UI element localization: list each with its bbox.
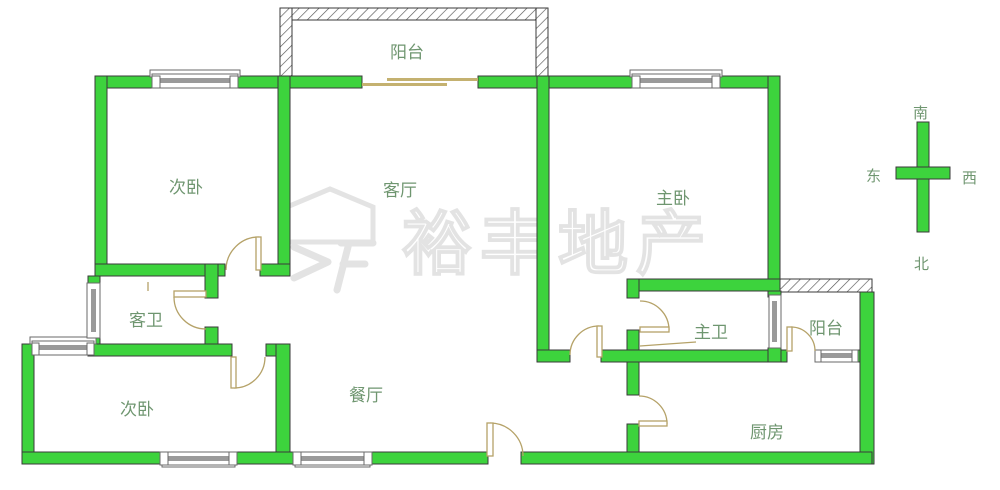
- wall-bathkitchen-left-a: [627, 279, 639, 298]
- window-balcony2-bottom: [815, 350, 858, 362]
- wall-right-outer: [860, 292, 874, 464]
- compass: 南 东 西 北: [866, 104, 977, 273]
- door-master-hall: [570, 326, 602, 357]
- door-masterbath: [640, 301, 669, 332]
- label-kitchen: 厨房: [750, 423, 784, 443]
- window-bedroom2-top: [30, 337, 96, 355]
- door-entry: [487, 423, 523, 456]
- wall-living-right: [537, 76, 549, 362]
- floor-plan-svg: 裕丰地产: [0, 0, 1000, 490]
- door-bedroom1: [226, 237, 261, 270]
- floor-plan: 裕丰地产: [0, 0, 1000, 490]
- wall-guestbath-right-upper: [205, 264, 218, 298]
- compass-east: 东: [866, 167, 881, 185]
- wall-top-b: [238, 76, 362, 88]
- window-bedroom1-top: [150, 70, 240, 88]
- label-bedroom-top-left: 次卧: [169, 178, 203, 198]
- wall-top-c: [478, 76, 632, 88]
- wall-bathwin-stub-bottom: [768, 348, 781, 362]
- label-living-room: 客厅: [383, 181, 417, 201]
- label-balcony-right: 阳台: [809, 319, 843, 339]
- label-master-bathroom: 主卫: [694, 323, 728, 343]
- compass-north: 北: [914, 255, 929, 273]
- wall-mid-b: [260, 264, 290, 276]
- wall-masterbath-top: [627, 279, 780, 291]
- door-kitchen: [639, 396, 667, 426]
- door-balcony-sliding: [362, 78, 478, 86]
- label-dining-room: 餐厅: [349, 386, 383, 406]
- wall-left-lower: [22, 344, 34, 464]
- watermark-logo-f: [337, 243, 373, 290]
- wall-midlower-b: [601, 350, 787, 362]
- balcony-top-wall-hatched: [280, 8, 548, 20]
- window-masterbath-balcony: [769, 295, 781, 348]
- wall-left-upper: [95, 76, 107, 276]
- wall-bedroom1-right: [278, 76, 290, 276]
- wall-bottom-d: [521, 452, 872, 464]
- door-bedroom2: [231, 357, 265, 388]
- window-master-top: [630, 70, 722, 88]
- compass-west: 西: [962, 169, 977, 187]
- wall-guestbath-left-stub-top: [88, 276, 100, 283]
- label-master-bedroom: 主卧: [656, 189, 690, 209]
- compass-south: 南: [913, 104, 928, 122]
- window-guestbath-left: [87, 283, 100, 338]
- balcony2-top-wall-hatched: [780, 279, 872, 292]
- door-guestbath: [174, 291, 206, 329]
- watermark-text: 裕丰地产: [402, 203, 714, 285]
- window-bottom-1: [160, 452, 237, 467]
- wall-bed2-top-b: [92, 344, 232, 356]
- label-guest-bathroom: 客卫: [129, 311, 163, 331]
- watermark-logo-chevron: [294, 247, 328, 278]
- balcony-left-wall-hatched: [280, 8, 292, 78]
- leader-line: [640, 342, 696, 346]
- compass-horizontal-bar: [896, 167, 950, 179]
- label-bedroom-bottom-left: 次卧: [120, 400, 154, 420]
- wall-midlower-a: [537, 350, 570, 362]
- watermark-logo-roof: [287, 189, 373, 242]
- wall-bottom-a: [22, 452, 160, 464]
- wall-bottom-b: [237, 452, 293, 464]
- watermark: 裕丰地产: [287, 189, 714, 290]
- wall-bed2-right: [276, 344, 290, 464]
- balcony-right-wall-hatched: [536, 8, 548, 78]
- window-bottom-2: [293, 452, 372, 467]
- wall-master-right: [768, 76, 780, 291]
- label-balcony-top: 阳台: [390, 43, 424, 63]
- wall-bottom-c: [372, 452, 488, 464]
